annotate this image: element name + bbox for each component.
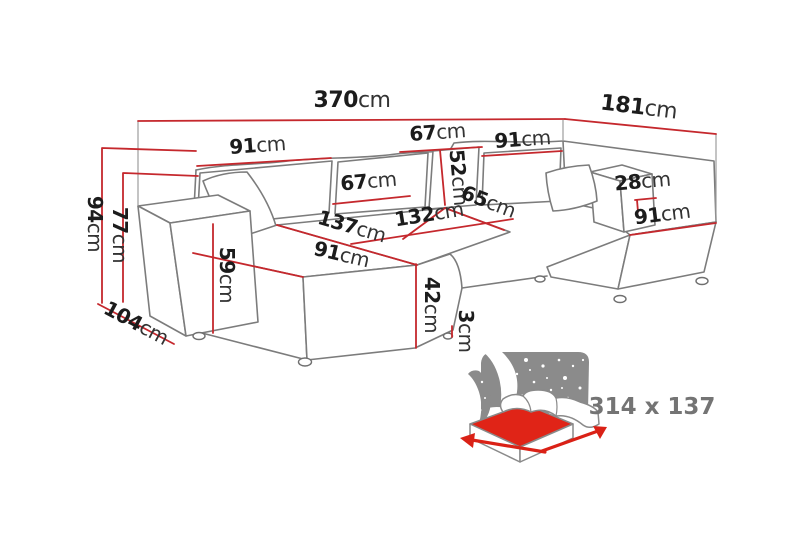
dim-label-back-height: 77cm xyxy=(108,207,132,263)
dim-label-back-cushion-mid: 67cm xyxy=(339,167,397,196)
sofa-dimension-drawing: 370cm 181cm 91cm 67cm 52cm 91cm 67cm 28c… xyxy=(0,0,800,533)
dimension-diagram: 370cm 181cm 91cm 67cm 52cm 91cm 67cm 28c… xyxy=(0,0,800,533)
right-chaise-inner-face xyxy=(547,235,630,289)
sofa-bed-icon: 314 x 137 xyxy=(460,350,715,462)
dim-label-back-cushion-right: 91cm xyxy=(494,125,552,153)
dim-label-armrest-height: 59cm xyxy=(215,247,239,303)
dim-line-total-width xyxy=(138,119,565,121)
inner-floor-edge xyxy=(462,276,547,288)
left-armrest-side xyxy=(170,211,258,336)
dim-label-leg-height: 3cm xyxy=(454,310,478,353)
dim-label-seat-height: 42cm xyxy=(420,277,444,333)
throw-pillow-right xyxy=(546,165,597,211)
sleeping-area-size: 314 x 137 xyxy=(589,394,716,420)
dim-label-armrest-right-width: 28cm xyxy=(613,167,671,196)
dim-label-side-depth: 181cm xyxy=(599,90,678,124)
dim-label-back-cushion-left: 91cm xyxy=(229,131,287,159)
dim-line-side-depth xyxy=(565,119,716,134)
dim-label-back-cushion-top: 67cm xyxy=(409,118,467,146)
dim-label-total-height: 94cm xyxy=(83,196,107,252)
width-arrow-head xyxy=(460,433,475,448)
dim-label-total-width: 370cm xyxy=(314,88,391,113)
